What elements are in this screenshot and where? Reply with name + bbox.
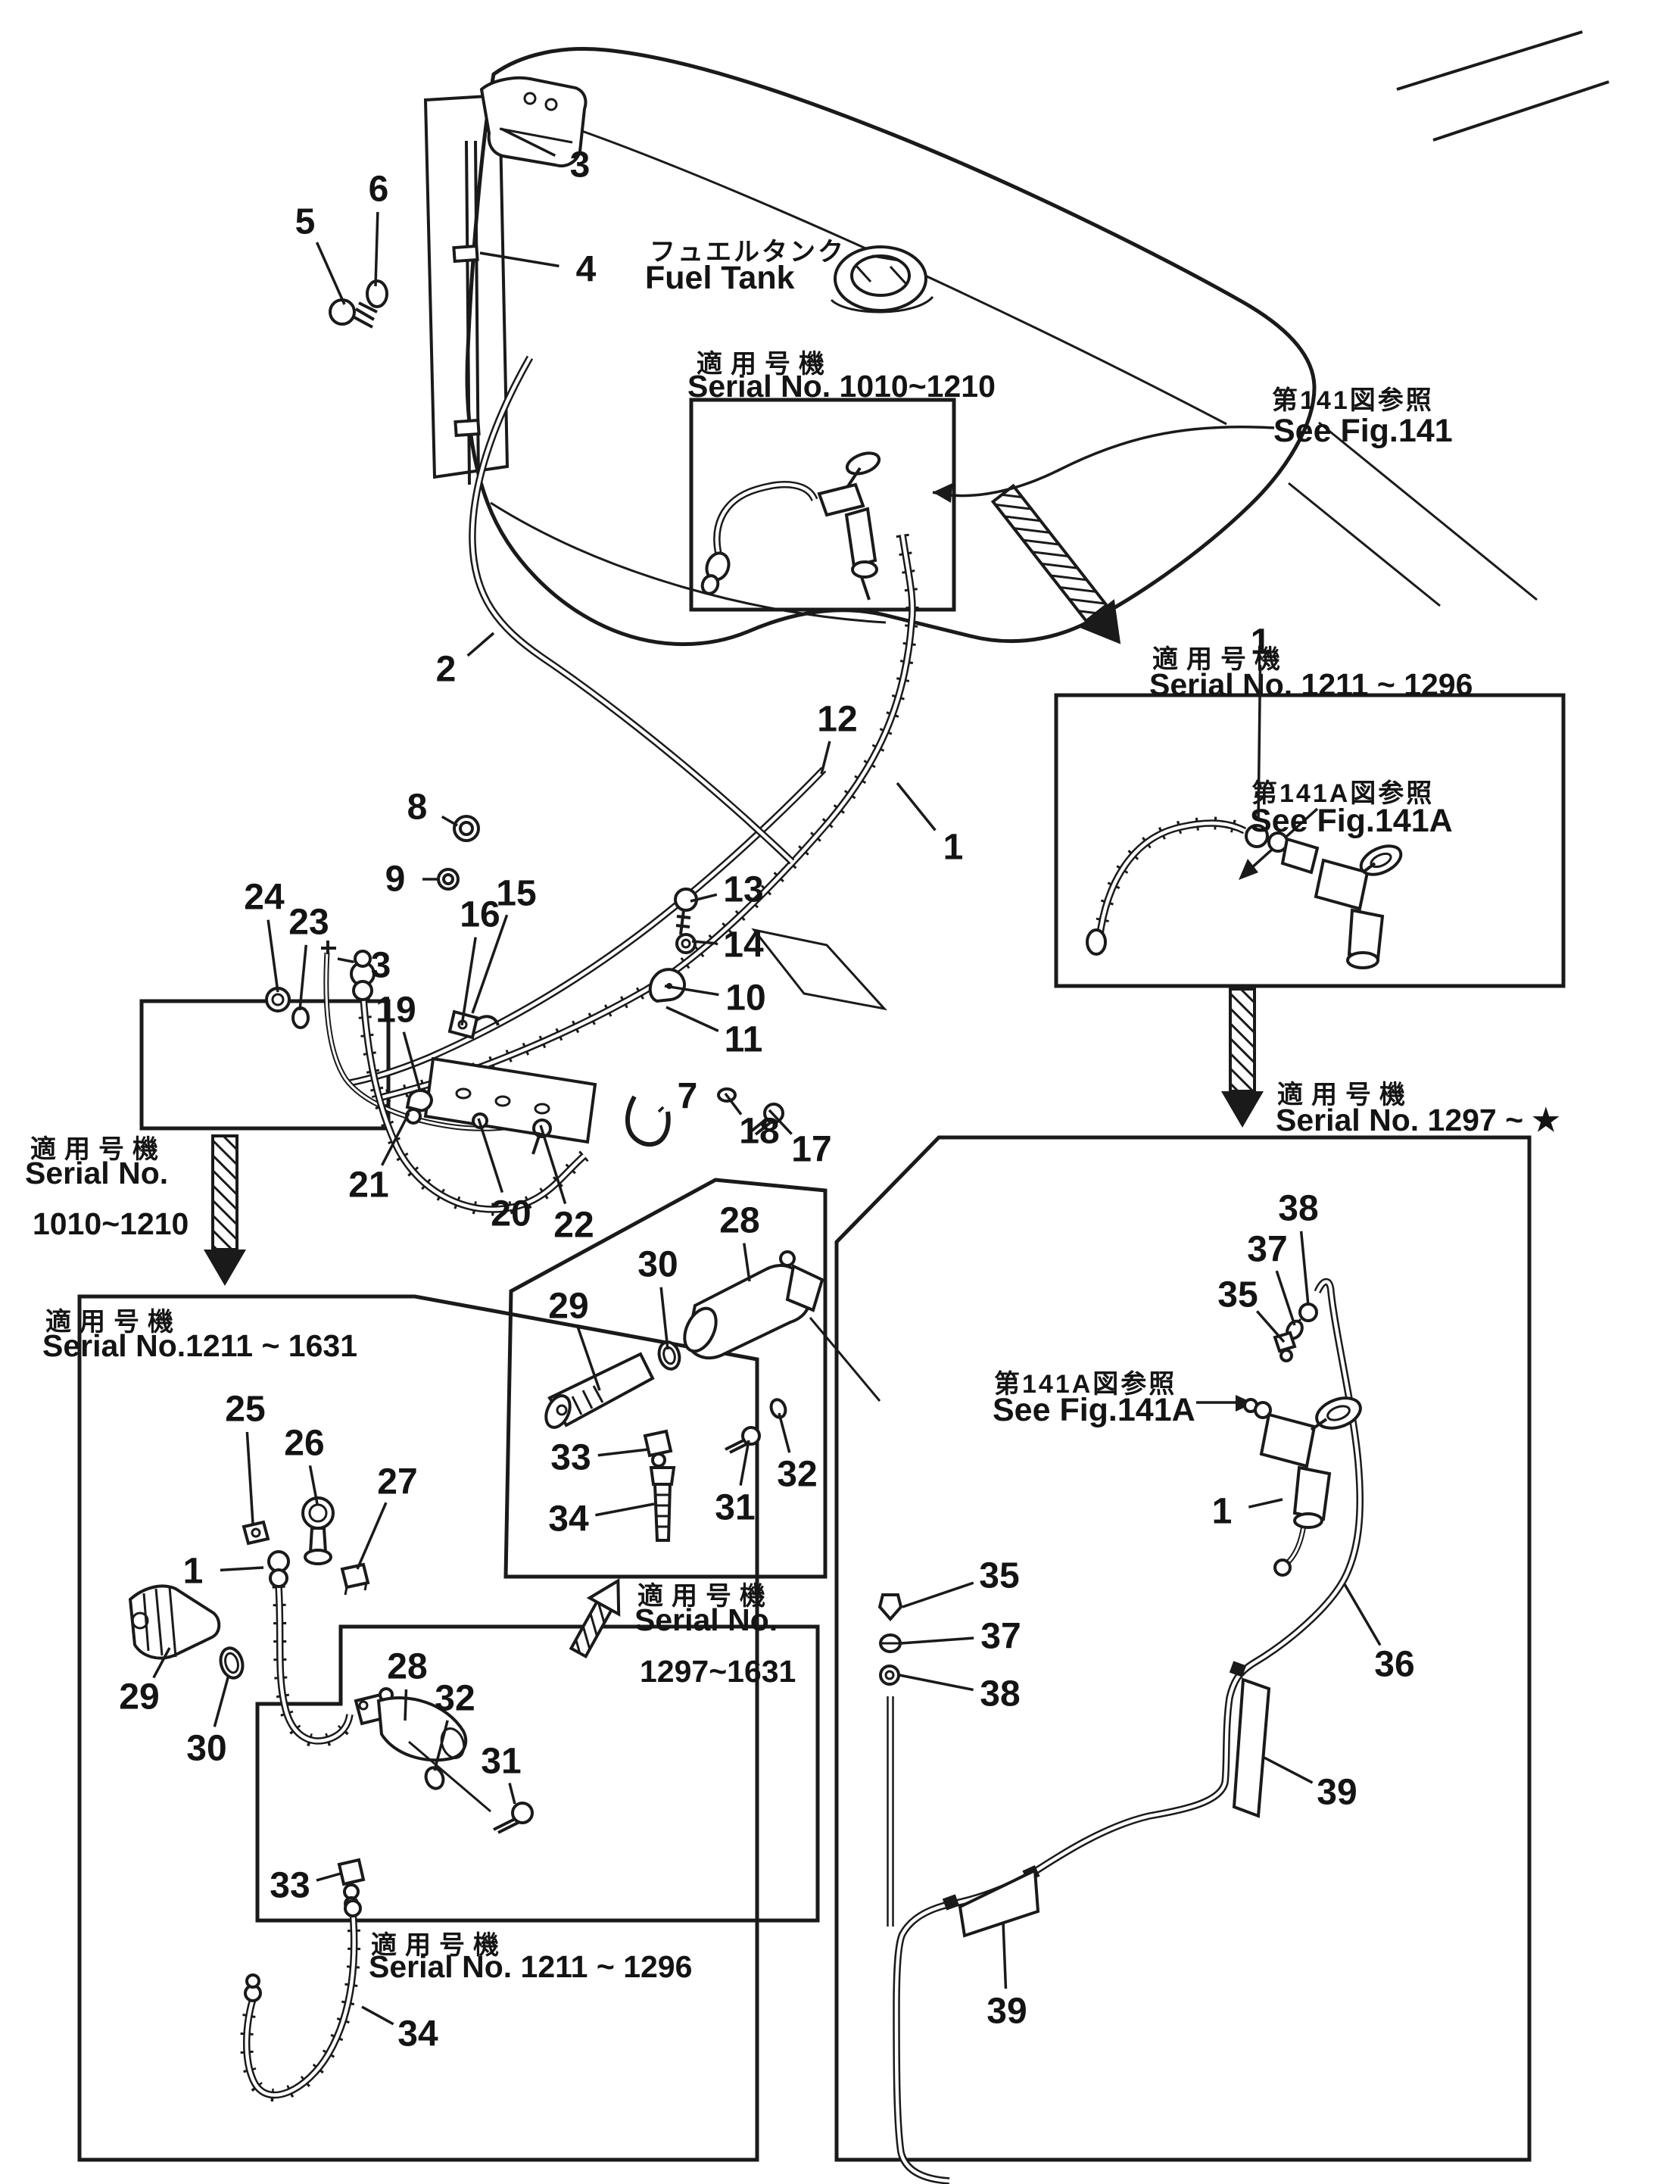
part-label-6-1: 6 xyxy=(369,170,389,287)
leader-39 xyxy=(1263,1757,1313,1783)
leader-1 xyxy=(1248,1499,1283,1507)
part-label-35-48: 35 xyxy=(902,1556,1020,1608)
part-number-38: 38 xyxy=(980,1674,1020,1714)
part-number-29: 29 xyxy=(119,1677,159,1718)
part-number-39: 39 xyxy=(986,1992,1027,2032)
part-number-34: 34 xyxy=(548,1499,589,1540)
leader-33 xyxy=(316,1874,341,1880)
part-number-14: 14 xyxy=(723,925,764,966)
fuel-tank-drawing xyxy=(330,32,1609,644)
note-serial-1297-star-line-2: Serial No. 1297 ~ ★ xyxy=(1276,1103,1560,1137)
leader-4 xyxy=(480,253,559,266)
part-number-28: 28 xyxy=(387,1647,427,1687)
note-serial-1297-1631-line-2: Serial No. xyxy=(634,1602,778,1637)
part-number-37: 37 xyxy=(1247,1230,1287,1270)
part-number-38: 38 xyxy=(1278,1189,1318,1229)
part-number-39: 39 xyxy=(1317,1773,1357,1813)
part-number-11: 11 xyxy=(725,1020,763,1060)
leader-5 xyxy=(317,242,344,304)
part-number-3: 3 xyxy=(570,145,591,186)
part-label-24-9: 24 xyxy=(244,878,285,993)
note-serial-1211-1296-right-line-2: Serial No. 1211 ~ 1296 xyxy=(1149,667,1473,702)
right-box-hose xyxy=(1099,823,1245,939)
bolt-31 xyxy=(494,1803,532,1833)
note-serial-1297-star: 適用号機Serial No. 1297 ~ ★ xyxy=(1276,1081,1560,1137)
part-label-1-47: 1 xyxy=(1212,1492,1283,1532)
hose-34-fittings xyxy=(245,1975,260,2001)
part-label-31-31: 31 xyxy=(715,1440,755,1528)
part-label-4-3: 4 xyxy=(480,250,597,290)
part-label-5-0: 5 xyxy=(295,202,344,305)
part-number-32: 32 xyxy=(777,1455,817,1495)
part-number-28: 28 xyxy=(719,1201,759,1241)
note-serial-1211-1296-bottom-line-2: Serial No. 1211 ~ 1296 xyxy=(369,1949,692,1984)
oring-23 xyxy=(293,1008,308,1028)
leader-11 xyxy=(666,1007,718,1031)
fitting-35-37-38-upper xyxy=(1275,1304,1317,1361)
leader-3 xyxy=(338,959,354,962)
part-number-6: 6 xyxy=(369,170,389,210)
part-label-25-32: 25 xyxy=(225,1390,265,1524)
box-callout-left xyxy=(142,1001,388,1128)
part-number-17: 17 xyxy=(791,1130,831,1170)
variant-arrows xyxy=(204,480,1264,1661)
fuel-tank-piping-diagram: フュエルタンクFuel Tank適用号機Serial No. 1010~1210… xyxy=(0,0,1680,2184)
leader-24 xyxy=(268,920,278,992)
box-serial-1211-1296-right xyxy=(1056,695,1563,986)
part-label-18-20: 18 xyxy=(725,1094,780,1152)
part-number-21: 21 xyxy=(348,1165,388,1206)
box-serial-1297-star xyxy=(837,1137,1529,2160)
part-number-1: 1 xyxy=(1212,1492,1233,1532)
part-label-26-33: 26 xyxy=(284,1424,324,1505)
nut-27 xyxy=(342,1565,368,1587)
part-label-39-52: 39 xyxy=(1263,1757,1357,1813)
leader-38 xyxy=(899,1675,974,1689)
note-see-fig-141a-right: 第141A図参照See Fig.141A xyxy=(1250,779,1453,839)
arrow-right-down xyxy=(1221,989,1264,1128)
valve-assembly-1211-1296 xyxy=(1087,825,1405,968)
note-serial-1010-1210-left-line-3: 1010~1210 xyxy=(33,1206,189,1241)
note-tank-title: フュエルタンクFuel Tank xyxy=(645,238,846,296)
valve-25-26 xyxy=(244,1498,333,1587)
leader-33 xyxy=(598,1449,648,1455)
valve-stub-1297 xyxy=(1286,1525,1304,1565)
part-number-24: 24 xyxy=(244,878,285,918)
part-label-39-53: 39 xyxy=(986,1922,1027,2032)
leader-25 xyxy=(247,1432,253,1524)
part-number-23: 23 xyxy=(288,903,329,943)
part-label-1-6: 1 xyxy=(897,783,963,868)
note-serial-1010-1210-top: 適用号機Serial No. 1010~1210 xyxy=(687,350,996,404)
leader-34 xyxy=(362,2007,394,2024)
part-number-7: 7 xyxy=(678,1077,698,1117)
leader-35 xyxy=(1257,1311,1284,1342)
part-label-7-19: 7 xyxy=(659,1077,697,1117)
filler-cap xyxy=(831,247,933,312)
part-label-20-23: 20 xyxy=(478,1119,531,1234)
hose-34-lowerleft xyxy=(247,1911,354,2095)
part-number-26: 26 xyxy=(284,1424,324,1464)
part-number-31: 31 xyxy=(481,1742,521,1782)
part-number-37: 37 xyxy=(980,1617,1021,1657)
part-number-22: 22 xyxy=(553,1206,594,1246)
arrow-left-down xyxy=(204,1136,246,1286)
leader-31 xyxy=(510,1783,515,1804)
part-number-34: 34 xyxy=(397,2014,438,2055)
gauge-tube-3-top xyxy=(321,941,336,954)
elbow-33 xyxy=(645,1431,671,1466)
part-number-36: 36 xyxy=(1374,1645,1414,1685)
part-number-1: 1 xyxy=(183,1552,204,1592)
part-number-31: 31 xyxy=(715,1488,755,1528)
part-label-30-26: 30 xyxy=(637,1245,678,1350)
leader-6 xyxy=(376,212,378,286)
part-number-13: 13 xyxy=(723,870,763,910)
part-number-9: 9 xyxy=(385,860,406,900)
part-number-33: 33 xyxy=(550,1438,591,1478)
nipple-34 xyxy=(651,1468,674,1540)
part-number-30: 30 xyxy=(637,1245,678,1285)
part-label-35-46: 35 xyxy=(1217,1275,1284,1343)
inset-valve-tube xyxy=(717,485,815,562)
leader-38 xyxy=(1301,1231,1308,1306)
leader-34 xyxy=(595,1504,654,1515)
part-label-36-51: 36 xyxy=(1345,1584,1415,1685)
washer-32 xyxy=(768,1398,787,1420)
note-see-fig-141a-lower-line-2: See Fig.141A xyxy=(993,1392,1195,1428)
valve-assembly-1010-1210 xyxy=(700,449,881,600)
part-number-27: 27 xyxy=(377,1462,417,1502)
part-number-5: 5 xyxy=(295,202,316,242)
leader-32 xyxy=(779,1413,790,1452)
filter-assembly-1297-1631 xyxy=(541,1252,880,1540)
mount-bracket xyxy=(425,1059,595,1142)
part-number-15: 15 xyxy=(496,874,536,914)
plate-39-a xyxy=(1234,1680,1269,1816)
note-serial-1010-1210-top-line-2: Serial No. 1010~1210 xyxy=(687,369,996,404)
leader-37 xyxy=(901,1638,974,1643)
part-label-28-25: 28 xyxy=(719,1201,759,1282)
part-number-2: 2 xyxy=(436,650,457,690)
part-number-18: 18 xyxy=(739,1112,779,1152)
part-number-1: 1 xyxy=(1251,622,1271,663)
part-number-3: 3 xyxy=(371,946,391,986)
note-serial-1010-1210-left-line-2: Serial No. xyxy=(25,1156,168,1190)
leader-39 xyxy=(1003,1922,1005,1989)
part-label-9-8: 9 xyxy=(385,860,439,900)
bolt-31 xyxy=(725,1427,759,1452)
arrow-up-to-1297-box xyxy=(564,1573,633,1661)
part-number-16: 16 xyxy=(460,895,500,935)
strainer-29 xyxy=(130,1586,219,1658)
part-number-20: 20 xyxy=(491,1194,531,1234)
plate-39-b xyxy=(960,1870,1038,1936)
part-label-27-34: 27 xyxy=(357,1462,418,1570)
part-number-12: 12 xyxy=(817,700,857,740)
part-label-34-29: 34 xyxy=(548,1499,654,1540)
leader-7 xyxy=(659,1107,663,1112)
note-serial-1211-1296-bottom: 適用号機Serial No. 1211 ~ 1296 xyxy=(369,1931,692,1984)
part-label-31-40: 31 xyxy=(481,1742,521,1805)
part-number-32: 32 xyxy=(435,1679,475,1719)
leader-28 xyxy=(405,1689,406,1721)
leader-30 xyxy=(214,1675,229,1727)
note-serial-1211-1631-line-2: Serial No.1211 ~ 1631 xyxy=(42,1328,357,1363)
part-label-33-41: 33 xyxy=(270,1866,341,1906)
fitting-35-37-38-lower xyxy=(880,1595,901,1684)
part-label-13-11: 13 xyxy=(690,870,764,910)
leader-1 xyxy=(897,783,935,830)
part-label-16-14: 16 xyxy=(460,895,500,1026)
note-serial-1211-1631: 適用号機Serial No.1211 ~ 1631 xyxy=(42,1308,357,1363)
part-label-1-35: 1 xyxy=(183,1552,263,1592)
note-serial-1010-1210-left: 適用号機Serial No.1010~1210 xyxy=(25,1135,189,1241)
part-number-35: 35 xyxy=(1217,1275,1258,1315)
part-label-8-7: 8 xyxy=(407,788,457,828)
nut-14 xyxy=(677,934,695,953)
part-number-1: 1 xyxy=(943,828,964,868)
part-label-33-28: 33 xyxy=(550,1438,648,1478)
part-label-23-10: 23 xyxy=(288,903,329,1011)
leader-36 xyxy=(1345,1584,1380,1646)
part-label-12-5: 12 xyxy=(817,700,857,775)
oring-30 xyxy=(217,1646,245,1680)
part-label-34-42: 34 xyxy=(362,2007,438,2055)
part-label-37-49: 37 xyxy=(901,1617,1021,1657)
part-label-2-4: 2 xyxy=(436,633,494,690)
note-serial-1297-1631: 適用号機Serial No.1297~1631 xyxy=(634,1582,796,1689)
note-see-fig-141-line-2: See Fig.141 xyxy=(1273,413,1453,449)
part-number-33: 33 xyxy=(270,1866,310,1906)
leader-1 xyxy=(220,1568,263,1570)
bracket-plate-13-14 xyxy=(754,930,884,1009)
note-see-fig-141-line-1: 第141図参照 xyxy=(1272,386,1434,415)
parts-catalog-page: フュエルタンクFuel Tank適用号機Serial No. 1010~1210… xyxy=(0,0,1680,2184)
leader-12 xyxy=(821,741,830,774)
leader-35 xyxy=(902,1583,974,1607)
leader-37 xyxy=(1276,1271,1295,1325)
filter-body-28 xyxy=(678,1252,822,1358)
part-number-10: 10 xyxy=(725,978,765,1019)
part-number-8: 8 xyxy=(407,788,428,828)
part-number-30: 30 xyxy=(186,1729,226,1769)
leader-27 xyxy=(357,1502,386,1569)
part-number-4: 4 xyxy=(576,250,597,290)
plug-29 xyxy=(541,1354,653,1431)
part-number-19: 19 xyxy=(376,991,416,1031)
part-label-30-37: 30 xyxy=(186,1675,229,1769)
part-number-35: 35 xyxy=(979,1556,1019,1596)
washer-6-glyph xyxy=(367,281,387,307)
note-tank-title-line-2: Fuel Tank xyxy=(645,260,795,296)
u-bolt-7 xyxy=(628,1097,669,1144)
note-serial-1211-1296-right: 適用号機Serial No. 1211 ~ 1296 xyxy=(1149,645,1473,702)
clamp-19-21 xyxy=(407,1090,432,1123)
part-number-25: 25 xyxy=(225,1390,265,1430)
leader-28 xyxy=(744,1243,750,1281)
bolt-13 xyxy=(675,889,697,934)
note-see-fig-141: 第141図参照See Fig.141 xyxy=(1272,386,1453,449)
note-serial-1297-1631-line-3: 1297~1631 xyxy=(640,1654,796,1689)
valve-assembly-1297 xyxy=(1245,1393,1364,1575)
note-see-fig-141a-right-line-2: See Fig.141A xyxy=(1250,803,1453,839)
part-label-38-50: 38 xyxy=(899,1674,1021,1714)
part-label-32-30: 32 xyxy=(777,1413,817,1495)
note-see-fig-141a-lower: 第141A図参照See Fig.141A xyxy=(993,1370,1195,1428)
part-label-29-27: 29 xyxy=(548,1287,600,1391)
part-number-29: 29 xyxy=(548,1287,588,1327)
leader-2 xyxy=(468,633,494,656)
